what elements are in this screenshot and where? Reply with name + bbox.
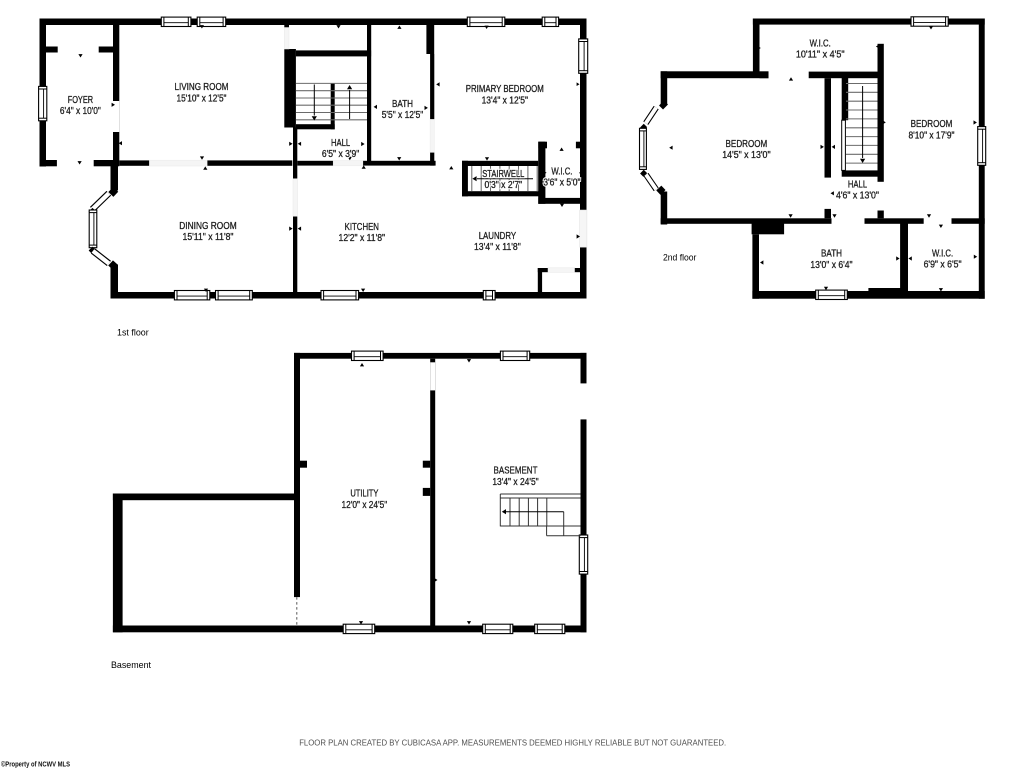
svg-text:8'10" x 17'9": 8'10" x 17'9" bbox=[909, 130, 955, 141]
svg-text:BATH: BATH bbox=[821, 249, 842, 260]
svg-text:HALL: HALL bbox=[848, 179, 867, 190]
svg-text:BEDROOM: BEDROOM bbox=[911, 119, 953, 130]
svg-text:FLOOR PLAN CREATED BY CUBICASA: FLOOR PLAN CREATED BY CUBICASA APP. MEAS… bbox=[299, 738, 726, 748]
svg-text:PRIMARY BEDROOM: PRIMARY BEDROOM bbox=[466, 84, 544, 95]
svg-text:BASEMENT: BASEMENT bbox=[494, 466, 538, 477]
svg-text:6'4" x 10'0": 6'4" x 10'0" bbox=[60, 106, 101, 117]
svg-text:13'4" x 11'8": 13'4" x 11'8" bbox=[474, 242, 521, 253]
svg-text:5'5" x 12'5": 5'5" x 12'5" bbox=[382, 110, 424, 121]
svg-text:Basement: Basement bbox=[111, 659, 151, 670]
svg-text:10'11" x 4'5": 10'11" x 4'5" bbox=[796, 50, 845, 61]
svg-text:UTILITY: UTILITY bbox=[350, 489, 378, 500]
svg-text:1st floor: 1st floor bbox=[117, 327, 149, 338]
svg-text:FOYER: FOYER bbox=[68, 95, 93, 106]
svg-text:W.I.C.: W.I.C. bbox=[551, 167, 572, 178]
svg-text:©Property of NCWV MLS: ©Property of NCWV MLS bbox=[1, 760, 70, 768]
svg-text:6'5" x 3'9": 6'5" x 3'9" bbox=[322, 149, 360, 160]
svg-text:4'6" x 13'0": 4'6" x 13'0" bbox=[836, 191, 879, 202]
svg-text:2nd floor: 2nd floor bbox=[663, 252, 696, 263]
svg-text:HALL: HALL bbox=[331, 138, 350, 149]
svg-text:15'11" x 11'8": 15'11" x 11'8" bbox=[183, 232, 234, 243]
svg-text:BATH: BATH bbox=[392, 99, 413, 110]
svg-text:14'5" x 13'0": 14'5" x 13'0" bbox=[722, 150, 771, 161]
svg-text:15'10" x 12'5": 15'10" x 12'5" bbox=[177, 93, 227, 104]
svg-text:STAIRWELL: STAIRWELL bbox=[482, 169, 524, 180]
svg-text:DINING ROOM: DINING ROOM bbox=[179, 221, 237, 232]
svg-text:13'4" x 12'5": 13'4" x 12'5" bbox=[482, 95, 529, 106]
svg-text:0'3" x 2'7": 0'3" x 2'7" bbox=[485, 180, 523, 191]
svg-text:13'4" x 24'5": 13'4" x 24'5" bbox=[492, 477, 539, 488]
svg-text:W.I.C.: W.I.C. bbox=[810, 38, 831, 49]
svg-text:BEDROOM: BEDROOM bbox=[726, 139, 768, 150]
svg-text:KITCHEN: KITCHEN bbox=[345, 222, 379, 233]
svg-text:13'0" x 6'4": 13'0" x 6'4" bbox=[810, 260, 853, 271]
svg-text:W.I.C.: W.I.C. bbox=[932, 248, 953, 259]
svg-text:6'9" x 6'5": 6'9" x 6'5" bbox=[924, 260, 962, 271]
svg-text:LAUNDRY: LAUNDRY bbox=[479, 231, 517, 242]
svg-text:LIVING ROOM: LIVING ROOM bbox=[175, 82, 229, 93]
svg-text:3'6" x 5'0": 3'6" x 5'0" bbox=[543, 178, 581, 189]
svg-text:12'0" x 24'5": 12'0" x 24'5" bbox=[342, 500, 388, 511]
svg-text:12'2" x 11'8": 12'2" x 11'8" bbox=[339, 233, 386, 244]
